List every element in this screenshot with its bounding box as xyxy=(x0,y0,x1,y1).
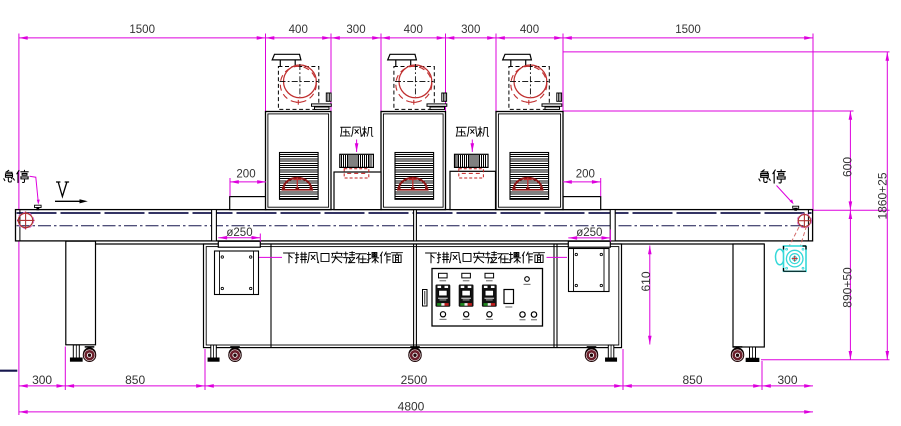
svg-text:ø250: ø250 xyxy=(576,227,602,239)
svg-text:1500: 1500 xyxy=(675,24,701,36)
svg-text:610: 610 xyxy=(639,271,653,291)
svg-text:300: 300 xyxy=(777,373,797,387)
svg-text:200: 200 xyxy=(576,168,595,180)
svg-text:850: 850 xyxy=(682,373,702,387)
svg-text:890+50: 890+50 xyxy=(841,267,855,308)
svg-text:400: 400 xyxy=(289,24,308,36)
svg-text:4800: 4800 xyxy=(398,399,425,413)
svg-text:400: 400 xyxy=(404,24,423,36)
svg-text:300: 300 xyxy=(32,373,52,387)
svg-text:2500: 2500 xyxy=(401,373,428,387)
svg-text:600: 600 xyxy=(841,157,855,177)
svg-text:200: 200 xyxy=(236,168,255,180)
svg-text:850: 850 xyxy=(125,373,145,387)
svg-text:1860+25: 1860+25 xyxy=(876,172,890,219)
svg-text:300: 300 xyxy=(346,24,365,36)
svg-text:300: 300 xyxy=(461,24,480,36)
svg-text:ø250: ø250 xyxy=(226,227,252,239)
svg-text:1500: 1500 xyxy=(129,24,155,36)
svg-text:400: 400 xyxy=(520,24,539,36)
